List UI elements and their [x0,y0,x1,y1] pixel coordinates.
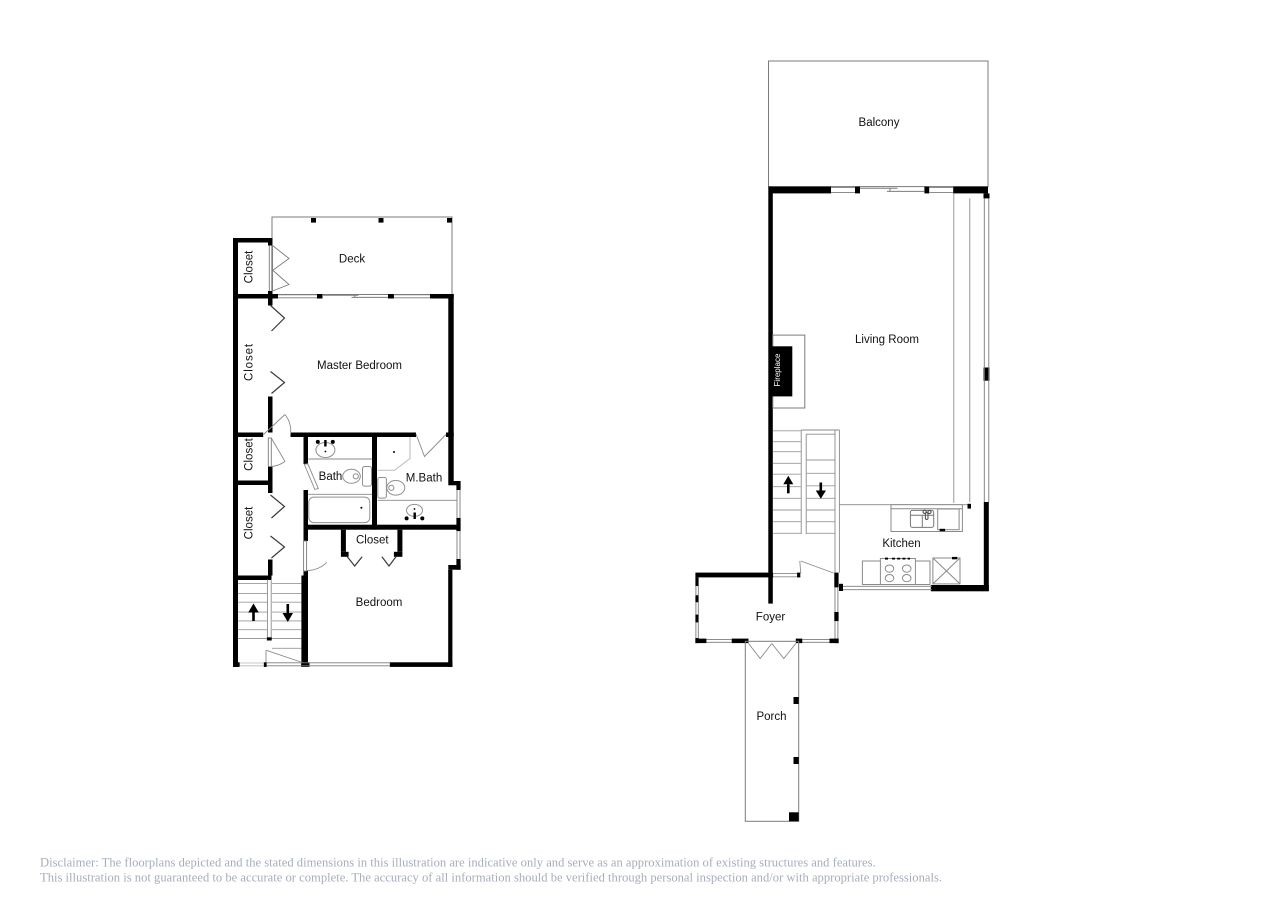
svg-text:Porch: Porch [756,711,786,723]
svg-text:Fireplace: Fireplace [773,353,782,386]
svg-text:Closet: Closet [243,437,255,470]
svg-text:Disclaimer: The floorplans dep: Disclaimer: The floorplans depicted and … [40,856,876,870]
svg-text:Closet: Closet [356,535,389,547]
svg-text:Closet: Closet [243,250,255,283]
svg-text:Closet: Closet [244,343,256,381]
svg-text:M.Bath: M.Bath [406,473,442,485]
svg-text:Bedroom: Bedroom [356,597,403,609]
svg-text:Foyer: Foyer [756,612,786,624]
svg-text:Bath: Bath [319,471,343,483]
svg-text:Balcony: Balcony [859,117,900,129]
svg-text:This illustration is not guara: This illustration is not guaranteed to b… [40,871,942,885]
svg-text:Master Bedroom: Master Bedroom [317,360,402,372]
svg-text:Closet: Closet [243,506,255,539]
svg-text:Kitchen: Kitchen [882,538,920,550]
svg-text:Living Room: Living Room [855,334,919,346]
svg-text:Deck: Deck [339,254,365,266]
